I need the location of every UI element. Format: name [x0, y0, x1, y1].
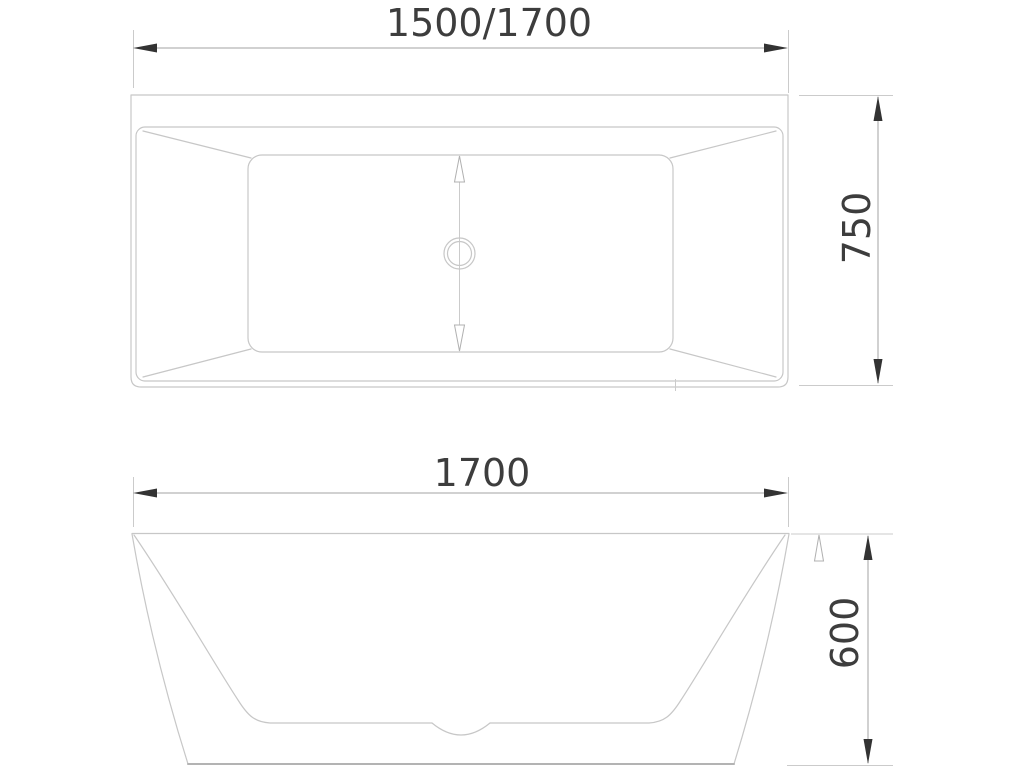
arrow-left-icon: [133, 44, 157, 53]
arrow-up-icon: [864, 535, 873, 560]
tub-inner-right-profile: [490, 535, 785, 723]
tub-basin-edge: [248, 155, 673, 352]
tub-outer-right-wall: [734, 534, 789, 764]
dimension-label-front-length: 1700: [434, 451, 531, 495]
tub-inner-left-profile: [134, 535, 432, 723]
arrow-up-icon: [874, 96, 883, 121]
arrow-right-icon: [764, 489, 788, 498]
dimension-top-width: 750: [799, 96, 893, 386]
dimension-front-length: 1700: [133, 451, 789, 527]
dimension-label-front-height: 600: [823, 597, 867, 670]
arrow-right-icon: [764, 44, 788, 53]
dimension-top-length: 1500/1700: [133, 1, 789, 93]
basin-slope-top-right: [670, 131, 776, 158]
open-arrow-up-icon: [815, 535, 824, 561]
arrow-down-icon: [864, 739, 873, 764]
tub-outer-left-wall: [132, 534, 188, 764]
arrow-left-icon: [133, 489, 157, 498]
bathtub-technical-drawing: 1500/1700: [0, 0, 1024, 768]
drawing-canvas: 1500/1700: [0, 0, 1024, 768]
dimension-front-height: 600: [787, 534, 893, 766]
open-arrow-up-icon: [455, 156, 465, 182]
basin-slope-top-left: [143, 131, 251, 158]
dimension-label-top-width: 750: [835, 192, 879, 265]
arrow-down-icon: [874, 359, 883, 384]
basin-slope-bottom-left: [143, 349, 251, 377]
open-arrow-down-icon: [455, 325, 465, 351]
front-view: [132, 534, 824, 765]
dimension-label-top-length: 1500/1700: [386, 1, 592, 45]
top-view: [131, 95, 788, 391]
drain-bump: [432, 723, 490, 735]
basin-slope-bottom-right: [670, 349, 776, 377]
